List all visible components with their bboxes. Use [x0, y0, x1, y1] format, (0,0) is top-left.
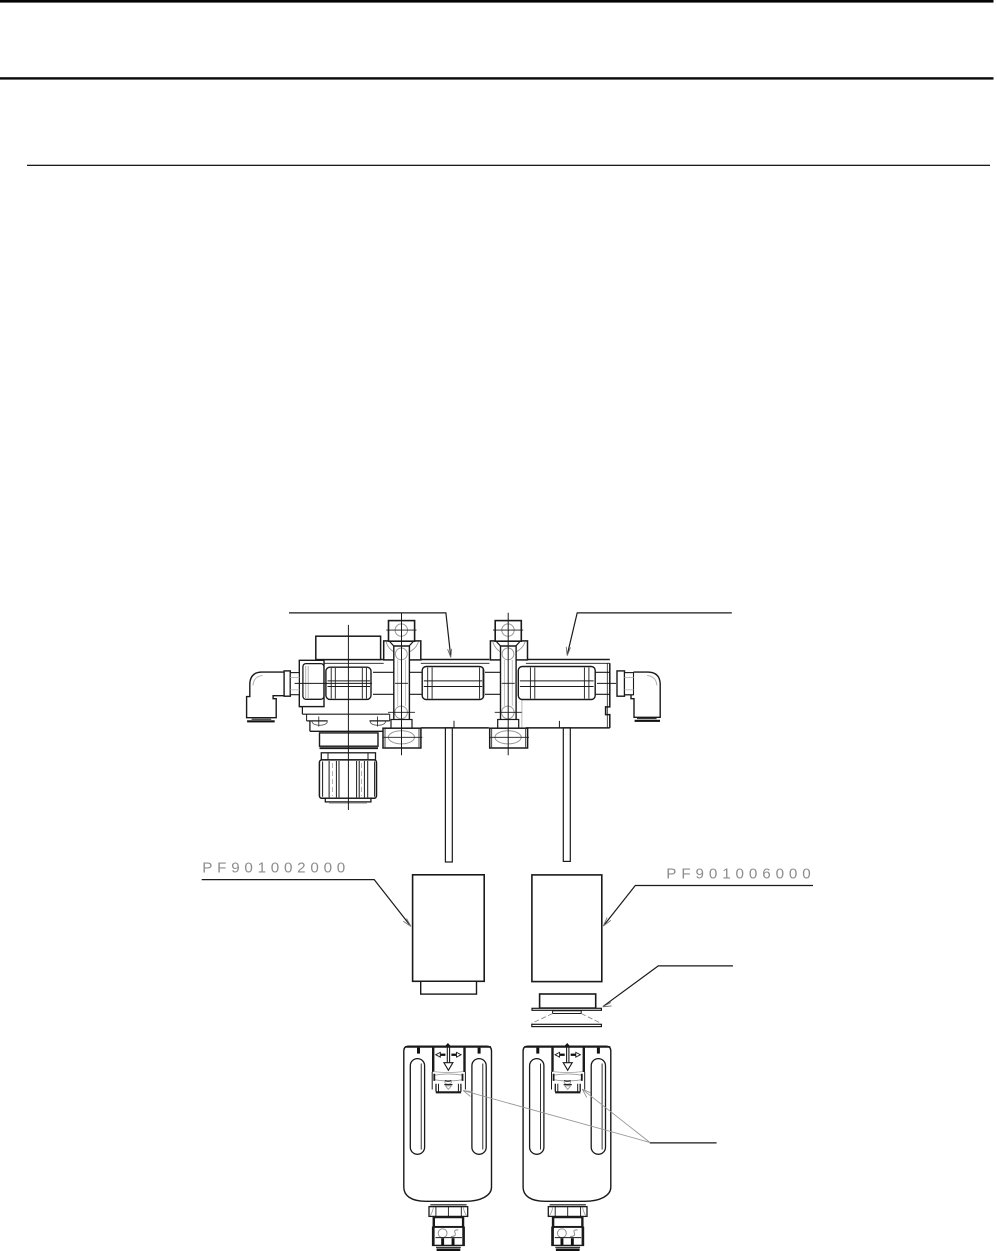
svg-text:PF901002000: PF901002000: [202, 859, 350, 876]
svg-text:PF901006000: PF901006000: [666, 866, 815, 883]
